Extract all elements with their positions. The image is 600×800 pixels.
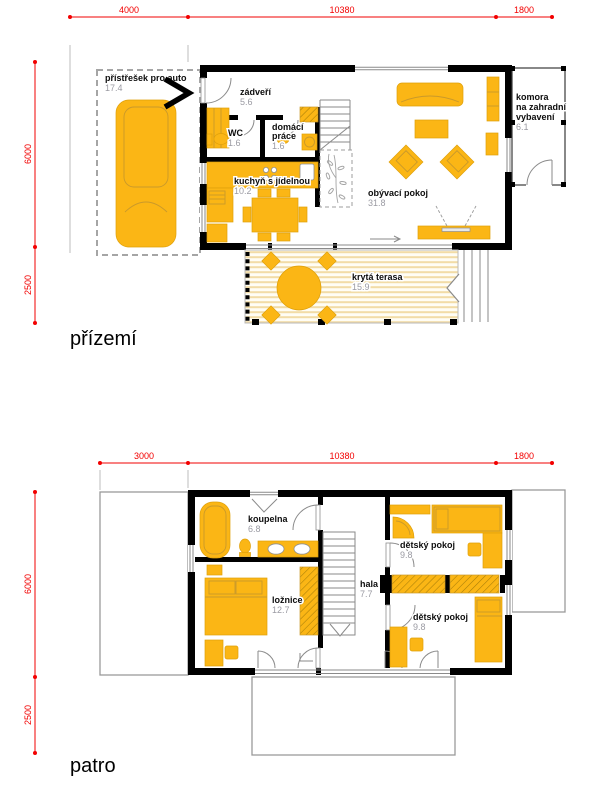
dining-table bbox=[243, 189, 307, 241]
ground-dim-2500: 2500 bbox=[23, 275, 33, 295]
wc-area: 1.6 bbox=[228, 138, 241, 148]
koupelna-label: koupelna bbox=[248, 514, 289, 524]
hala-label: hala bbox=[360, 579, 379, 589]
komora-label-2: na zahradní bbox=[516, 102, 567, 112]
komora-area: 6.1 bbox=[516, 122, 529, 132]
kuchyn-label: kuchyň s jídelnou bbox=[234, 176, 310, 186]
upper-floor-title: patro bbox=[70, 755, 116, 777]
room-domaci-prace: domácí práce 1.6 bbox=[272, 122, 317, 151]
room-detsky-2: dětský pokoj 9.8 bbox=[390, 597, 502, 667]
staircase-upper bbox=[323, 532, 355, 636]
zadveri-label: zádveří bbox=[240, 87, 272, 97]
vanity bbox=[258, 541, 318, 557]
carport-roof-outline bbox=[100, 492, 188, 675]
wc-label: WC bbox=[228, 128, 243, 138]
zadveri-area: 5.6 bbox=[240, 97, 253, 107]
ground-floor-title: přízemí bbox=[70, 328, 137, 350]
double-bed bbox=[205, 578, 267, 635]
obyvaci-label: obývací pokoj bbox=[368, 188, 428, 198]
tilt-window-icon bbox=[252, 499, 277, 512]
koupelna-area: 6.8 bbox=[248, 524, 261, 534]
stair-direction-icon bbox=[330, 624, 350, 636]
room-obyvaci: obývací pokoj 31.8 bbox=[368, 77, 499, 239]
room-hala: hala 7.7 bbox=[360, 579, 379, 599]
nightstand bbox=[207, 565, 222, 575]
upper-dim-6000: 6000 bbox=[23, 574, 33, 594]
bathtub bbox=[200, 502, 230, 558]
komora-label-3: vybavení bbox=[516, 112, 555, 122]
domaci-prace-label-2: práce bbox=[272, 131, 296, 141]
chair bbox=[225, 646, 238, 659]
loznice-label: ložnice bbox=[272, 595, 303, 605]
sofa bbox=[397, 83, 463, 106]
komora-label-1: komora bbox=[516, 92, 550, 102]
armchair bbox=[440, 145, 474, 179]
obyvaci-area: 31.8 bbox=[368, 198, 386, 208]
ground-floor-plan: 4000 10380 1800 6000 2500 přístřešek pro… bbox=[23, 5, 567, 350]
desk bbox=[205, 640, 223, 666]
armchair bbox=[389, 145, 423, 179]
kuchyn-area: 10.2 bbox=[234, 186, 252, 196]
sliding-door-arrow-icon bbox=[370, 236, 400, 242]
armchair bbox=[393, 517, 414, 538]
terrace-roof-outline bbox=[252, 677, 455, 755]
terasa-label: krytá terasa bbox=[352, 272, 404, 282]
bed bbox=[475, 597, 502, 662]
desk bbox=[483, 533, 502, 568]
shelf bbox=[390, 505, 430, 514]
cabinet bbox=[486, 133, 498, 155]
floor-plan-document: 4000 10380 1800 6000 2500 přístřešek pro… bbox=[0, 0, 600, 800]
upper-dim-3000: 3000 bbox=[134, 451, 154, 461]
chair bbox=[468, 543, 481, 556]
cabinet bbox=[487, 77, 499, 121]
carport-area: 17.4 bbox=[105, 83, 123, 93]
room-terasa: krytá terasa 15.9 bbox=[245, 250, 488, 325]
detsky1-label: dětský pokoj bbox=[400, 540, 455, 550]
carport: přístřešek pro auto 17.4 bbox=[97, 70, 200, 255]
detsky2-label: dětský pokoj bbox=[413, 612, 468, 622]
entrance-arrow-icon bbox=[165, 79, 189, 107]
chair bbox=[410, 638, 423, 651]
terasa-area: 15.9 bbox=[352, 282, 370, 292]
hala-area: 7.7 bbox=[360, 589, 373, 599]
toilet bbox=[240, 539, 251, 557]
room-komora: komora na zahradní vybavení 6.1 bbox=[510, 66, 567, 187]
room-koupelna: koupelna 6.8 bbox=[200, 502, 318, 558]
upper-dim-10380: 10380 bbox=[329, 451, 354, 461]
detsky1-area: 9.8 bbox=[400, 550, 413, 560]
ground-dim-1800: 1800 bbox=[514, 5, 534, 15]
staircase-ground bbox=[320, 100, 352, 207]
car bbox=[116, 100, 176, 247]
upper-dim-2500: 2500 bbox=[23, 705, 33, 725]
desk bbox=[390, 627, 407, 667]
room-kuchyn: kuchyň s jídelnou 10.2 bbox=[207, 162, 318, 242]
plant bbox=[326, 154, 347, 203]
bed bbox=[432, 505, 502, 533]
wardrobe bbox=[300, 567, 318, 635]
floor-plans-svg: 4000 10380 1800 6000 2500 přístřešek pro… bbox=[0, 0, 600, 800]
upper-dim-1800: 1800 bbox=[514, 451, 534, 461]
room-detsky-1: dětský pokoj 9.8 bbox=[390, 505, 502, 568]
domaci-prace-area: 1.6 bbox=[272, 141, 285, 151]
loznice-area: 12.7 bbox=[272, 605, 290, 615]
komora-roof-outline bbox=[512, 490, 565, 612]
ground-dim-6000: 6000 bbox=[23, 144, 33, 164]
tv-bench bbox=[418, 206, 490, 239]
upper-floor-plan: 3000 10380 1800 6000 2500 bbox=[23, 451, 565, 777]
ground-dim-4000: 4000 bbox=[119, 5, 139, 15]
coffee-table bbox=[415, 120, 448, 138]
wardrobe bbox=[450, 575, 499, 593]
detsky2-area: 9.8 bbox=[413, 622, 426, 632]
ground-dim-10380: 10380 bbox=[329, 5, 354, 15]
wardrobe bbox=[392, 575, 445, 593]
